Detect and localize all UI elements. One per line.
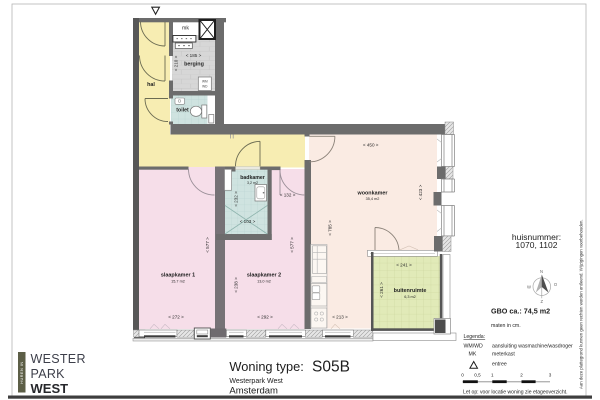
svg-text:O: O [554, 282, 558, 287]
svg-text:< 423 >: < 423 > [418, 184, 423, 200]
svg-text:< 210 >: < 210 > [174, 55, 179, 71]
svg-text:0: 0 [461, 373, 464, 378]
svg-text:< 103 >: < 103 > [240, 219, 256, 224]
svg-text:13,0 m2: 13,0 m2 [257, 280, 271, 284]
svg-text:entree: entree [492, 362, 507, 368]
svg-text:berging: berging [184, 62, 204, 68]
svg-text:MK: MK [469, 352, 477, 358]
svg-text:< 232 >: < 232 > [234, 191, 239, 207]
svg-text:maten in cm.: maten in cm. [491, 323, 521, 329]
svg-text:Z: Z [541, 299, 544, 304]
svg-text:< 261 >: < 261 > [379, 282, 384, 298]
svg-text:PARK: PARK [31, 367, 66, 381]
svg-text:6,3 m2: 6,3 m2 [404, 295, 416, 299]
svg-text:0,5: 0,5 [474, 373, 481, 378]
svg-text:mk: mk [182, 26, 189, 32]
svg-text:< 292 >: < 292 > [257, 315, 273, 320]
svg-text:WESTER: WESTER [31, 352, 86, 366]
svg-text:WEST: WEST [31, 381, 69, 396]
svg-text:3,2 m2: 3,2 m2 [247, 181, 258, 185]
svg-text:Amsterdam: Amsterdam [229, 386, 278, 397]
svg-text:aansluiting wasmachine/wasdrog: aansluiting wasmachine/wasdroger [492, 344, 573, 350]
svg-text:hal: hal [147, 82, 155, 88]
svg-text:< 577 >: < 577 > [290, 237, 295, 253]
svg-text:HUREN IN: HUREN IN [20, 361, 24, 383]
svg-text:Woning type:: Woning type: [229, 359, 303, 374]
svg-text:1: 1 [491, 373, 494, 378]
svg-text:1070, 1102: 1070, 1102 [516, 240, 558, 250]
svg-text:buitenruimte: buitenruimte [394, 288, 427, 294]
svg-text:< 785 >: < 785 > [328, 220, 333, 236]
svg-text:WM/WD: WM/WD [464, 344, 484, 350]
svg-text:slaapkamer 2: slaapkamer 2 [247, 273, 281, 279]
svg-text:15,7 m2: 15,7 m2 [171, 280, 185, 284]
svg-text:< 132 >: < 132 > [280, 193, 296, 198]
svg-text:< 272 >: < 272 > [168, 315, 184, 320]
svg-text:WM: WM [202, 80, 208, 84]
svg-text:2: 2 [520, 373, 523, 378]
svg-text:meterkast: meterkast [492, 352, 515, 358]
svg-text:< 213 >: < 213 > [332, 315, 348, 320]
svg-text:Legenda:: Legenda: [464, 334, 486, 340]
svg-text:< 185 >: < 185 > [186, 53, 202, 58]
svg-text:< 241 >: < 241 > [396, 263, 412, 268]
svg-text:3: 3 [549, 373, 552, 378]
svg-text:Aan deze plattegrond kunnen ge: Aan deze plattegrond kunnen geen rechten… [579, 219, 584, 389]
svg-text:toilet: toilet [176, 108, 189, 114]
svg-text:S05B: S05B [312, 359, 350, 376]
svg-text:35,4 m2: 35,4 m2 [366, 197, 380, 201]
svg-text:W: W [527, 285, 531, 290]
svg-text:slaapkamer 1: slaapkamer 1 [161, 273, 195, 279]
svg-text:Westerpark West: Westerpark West [229, 378, 282, 385]
svg-text:N: N [540, 269, 543, 274]
svg-text:Let op: voor locatie woning: Let op: voor locatie woning zie etageove… [463, 390, 567, 396]
svg-text:< 450 >: < 450 > [363, 143, 379, 148]
svg-text:WD: WD [202, 85, 208, 89]
svg-text:< 238 >: < 238 > [233, 277, 238, 293]
svg-text:GBO ca.: 74,5 m2: GBO ca.: 74,5 m2 [491, 307, 550, 316]
svg-text:< 577 >: < 577 > [205, 237, 210, 253]
svg-text:woonkamer: woonkamer [357, 191, 389, 197]
